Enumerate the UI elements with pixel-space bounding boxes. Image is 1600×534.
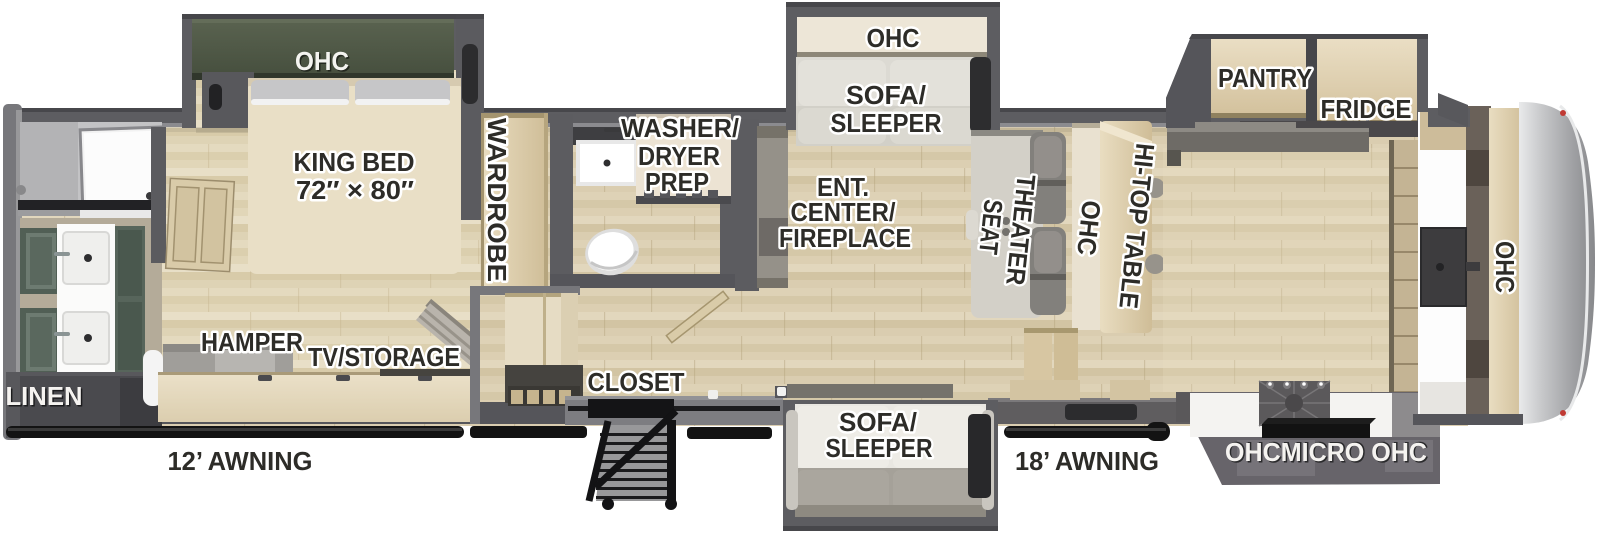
svg-text:SLEEPER: SLEEPER: [826, 433, 933, 463]
svg-text:12’ AWNING: 12’ AWNING: [168, 446, 313, 476]
svg-text:OHC: OHC: [295, 46, 349, 76]
svg-text:SOFA/: SOFA/: [846, 80, 926, 110]
svg-text:HAMPER: HAMPER: [201, 327, 303, 357]
svg-text:OHC: OHC: [867, 23, 920, 53]
svg-text:KING BED: KING BED: [294, 147, 415, 177]
svg-text:WASHER/: WASHER/: [621, 113, 739, 143]
svg-text:PANTRY: PANTRY: [1218, 63, 1312, 93]
svg-text:72″ × 80″: 72″ × 80″: [296, 175, 414, 205]
svg-text:FIREPLACE: FIREPLACE: [779, 223, 911, 253]
svg-text:CLOSET: CLOSET: [588, 367, 685, 397]
svg-text:OHC: OHC: [1490, 241, 1520, 293]
svg-text:TV/STORAGE: TV/STORAGE: [308, 342, 460, 372]
svg-text:PREP: PREP: [645, 167, 709, 197]
svg-text:OHCMICRO OHC: OHCMICRO OHC: [1225, 437, 1427, 467]
svg-text:SEAT: SEAT: [973, 198, 1009, 256]
svg-text:WARDROBE: WARDROBE: [482, 118, 512, 282]
svg-text:18’ AWNING: 18’ AWNING: [1015, 446, 1159, 476]
svg-text:SLEEPER: SLEEPER: [831, 108, 942, 138]
svg-text:LINEN: LINEN: [6, 381, 83, 411]
svg-text:FRIDGE: FRIDGE: [1321, 94, 1412, 124]
svg-text:OHC: OHC: [1071, 199, 1107, 257]
